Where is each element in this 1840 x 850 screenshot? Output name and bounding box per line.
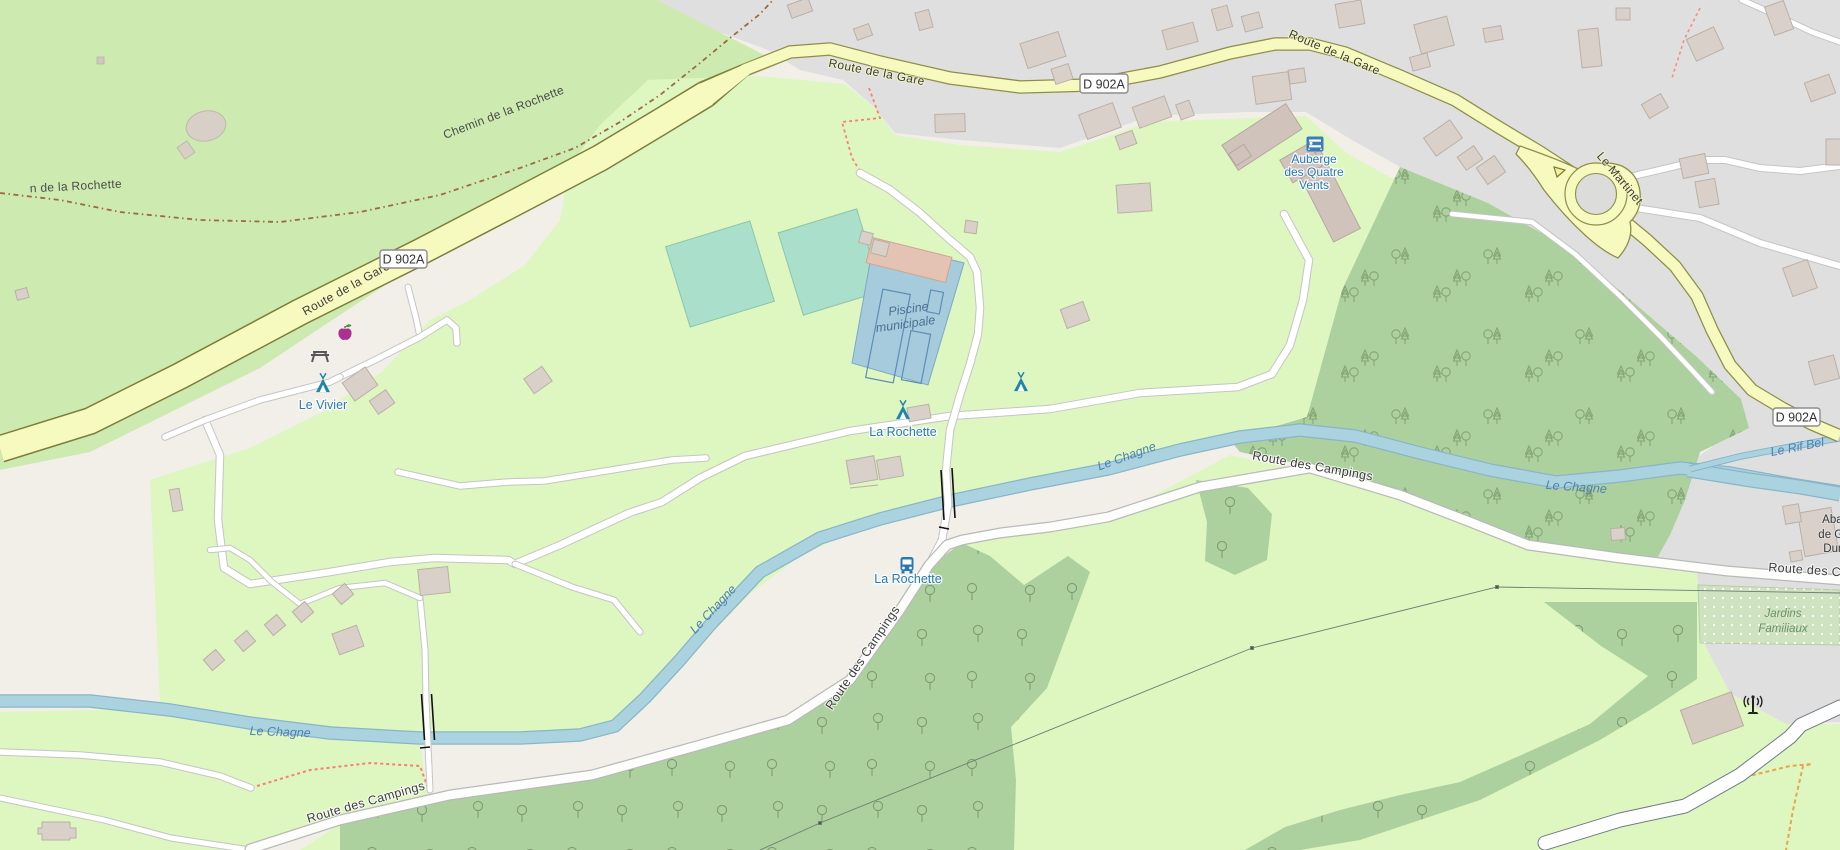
svg-text:Auberge: Auberge [1291,152,1337,166]
svg-text:Durance: Durance [1823,543,1840,555]
svg-text:Le Chagne: Le Chagne [249,724,311,740]
svg-text:des Quatre: des Quatre [1284,165,1344,179]
svg-text:La Rochette: La Rochette [869,425,936,439]
svg-text:D 902A: D 902A [1083,78,1125,92]
svg-text:D 902A: D 902A [1776,411,1818,425]
svg-text:Familiaux: Familiaux [1758,623,1808,635]
svg-text:de Guille: de Guille [1818,529,1840,541]
svg-text:D 902A: D 902A [383,253,425,267]
svg-text:Jardins: Jardins [1763,608,1801,620]
svg-text:Vents: Vents [1299,178,1329,192]
svg-text:Abattoir: Abattoir [1822,514,1840,526]
svg-text:La Rochette: La Rochette [874,572,941,586]
svg-text:Le Vivier: Le Vivier [299,398,347,412]
